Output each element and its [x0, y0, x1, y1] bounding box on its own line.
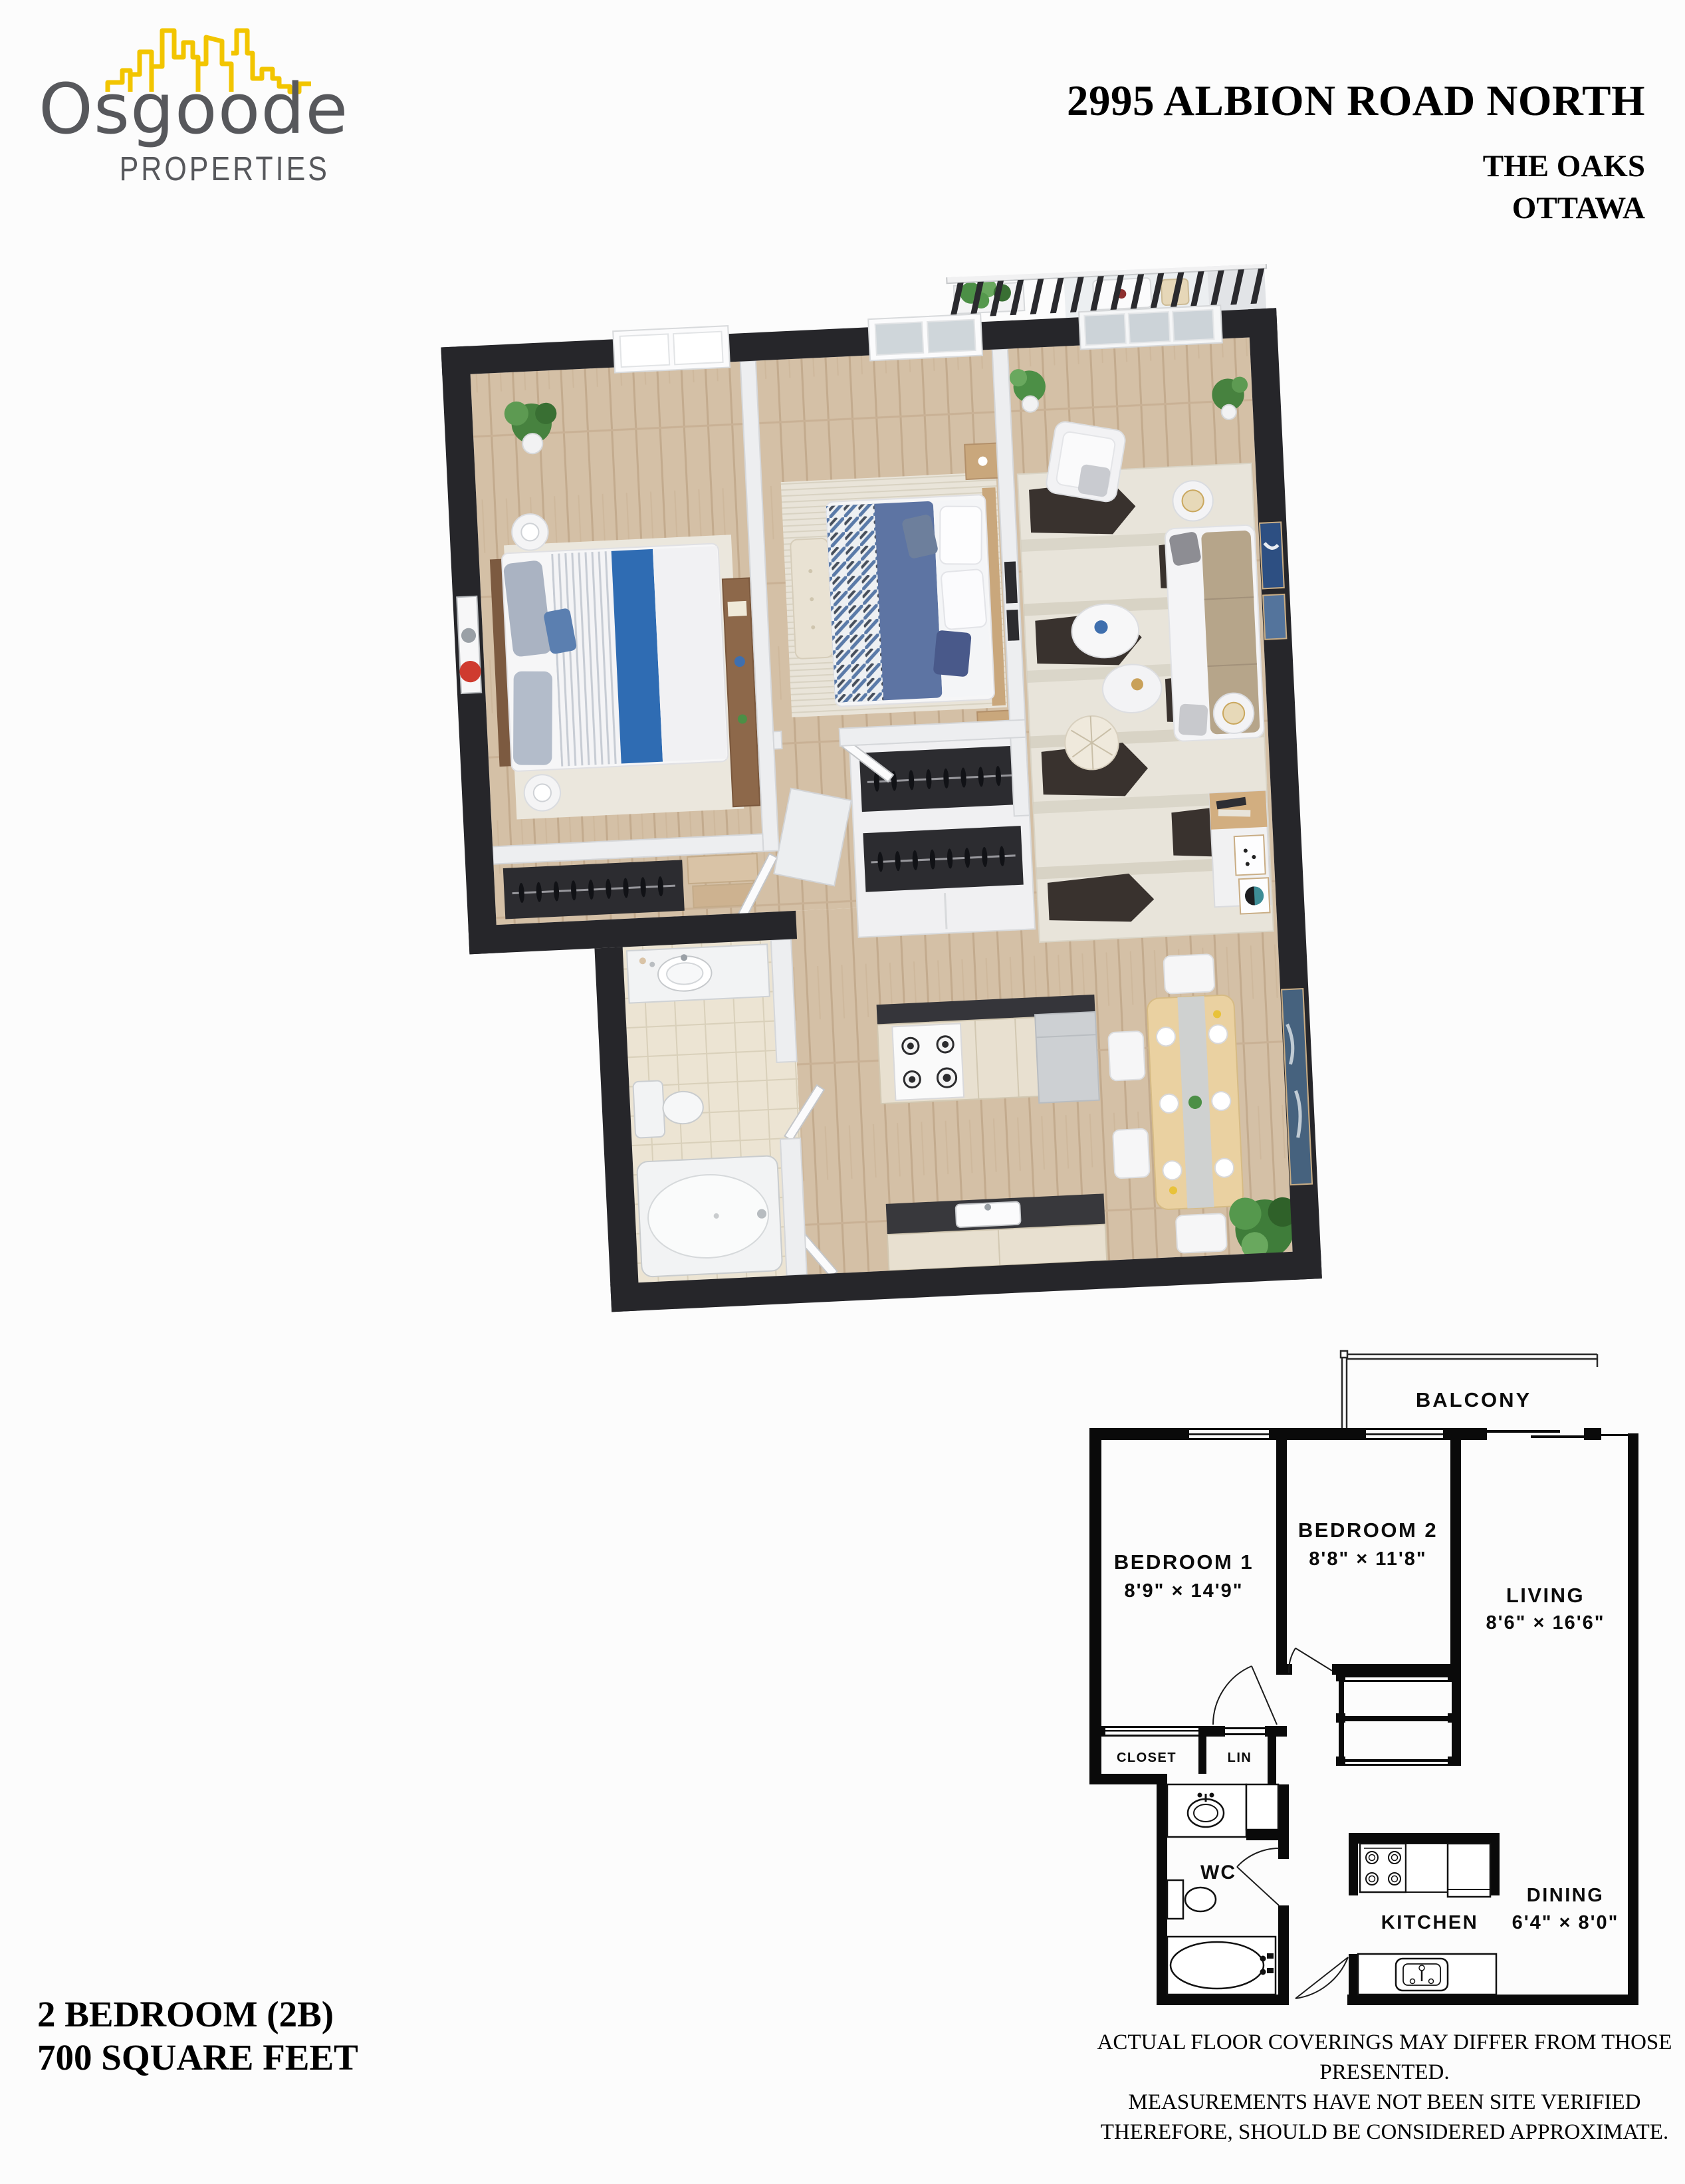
- bedroom1-dims: 8'9" × 14'9": [1125, 1580, 1244, 1602]
- kitchen-label: KITCHEN: [1381, 1912, 1478, 1933]
- bedroom2-bed: [826, 487, 1006, 713]
- toilet: [633, 1080, 665, 1138]
- bedroom2-dims: 8'8" × 11'8": [1309, 1548, 1426, 1570]
- building-name: THE OAKS: [1067, 151, 1645, 182]
- living-dims: 8'6" × 16'6": [1486, 1612, 1605, 1634]
- lamp: [521, 523, 539, 541]
- armchair: [1045, 420, 1127, 503]
- logo-wordmark: Osgoode: [39, 74, 331, 144]
- disclaimer: ACTUAL FLOOR COVERINGS MAY DIFFER FROM T…: [1092, 2028, 1677, 2147]
- linen-label: LIN: [1228, 1751, 1252, 1765]
- wall-frame: [1004, 561, 1018, 603]
- counter-2d: [1406, 1844, 1448, 1892]
- balcony-label: BALCONY: [1416, 1388, 1531, 1411]
- city-name: OTTAWA: [1067, 193, 1645, 224]
- lamp: [1222, 702, 1245, 725]
- unit-area: 700 SQUARE FEET: [37, 2036, 358, 2080]
- lamp: [533, 784, 551, 802]
- wall-bath-left: [1157, 1774, 1167, 2005]
- logo-tagline: PROPERTIES: [39, 150, 330, 189]
- dining-dims: 6'4" × 8'0": [1512, 1912, 1619, 1933]
- bathroom-2d: [1167, 1784, 1289, 1995]
- stove: [892, 1024, 964, 1100]
- wc-label: WC: [1200, 1862, 1236, 1883]
- bedroom1-wall-art: [456, 596, 482, 693]
- dining-label: DINING: [1527, 1885, 1605, 1906]
- disclaimer-line: MEASUREMENTS HAVE NOT BEEN SITE VERIFIED: [1092, 2088, 1677, 2118]
- disclaimer-line: ACTUAL FLOOR COVERINGS MAY DIFFER FROM T…: [1092, 2028, 1677, 2088]
- bathtub: [637, 1155, 782, 1277]
- stove-2d: [1360, 1844, 1406, 1892]
- lamp: [1182, 489, 1204, 512]
- property-address: 2995 ALBION ROAD NORTH: [1067, 80, 1645, 123]
- dining-chair: [1113, 1129, 1150, 1179]
- console-desk: [1209, 790, 1271, 915]
- bedroom2-label: BEDROOM 2: [1298, 1518, 1438, 1542]
- bedroom1-label: BEDROOM 1: [1114, 1550, 1254, 1574]
- dining-chair: [1163, 954, 1214, 994]
- closet-label: CLOSET: [1117, 1751, 1177, 1765]
- fridge: [1035, 1012, 1099, 1103]
- wall-right: [1628, 1433, 1638, 2005]
- floorplan-3d-render: [321, 263, 1347, 1347]
- hall-closets-2d: [1336, 1672, 1461, 1766]
- balcony-sliding-door: [1079, 305, 1222, 349]
- linen-shelf: [687, 854, 758, 884]
- kitchen-wall: [1349, 1833, 1500, 1844]
- closet-door-symbol: [1105, 1726, 1198, 1737]
- disclaimer-line: THEREFORE, SHOULD BE CONSIDERED APPROXIM…: [1092, 2118, 1677, 2147]
- floorplan-sheet: { "logo": { "name": "Osgoode", "tagline"…: [0, 0, 1685, 2184]
- dining-chair: [1176, 1213, 1227, 1253]
- dining-chair: [1108, 1031, 1145, 1081]
- unit-type: 2 BEDROOM (2B): [37, 1993, 358, 2036]
- wall-frame: [1006, 610, 1019, 641]
- linen-door-symbol: [1225, 1727, 1265, 1735]
- unit-info: 2 BEDROOM (2B) 700 SQUARE FEET: [37, 1993, 358, 2080]
- header-block: 2995 ALBION ROAD NORTH THE OAKS OTTAWA: [1067, 80, 1645, 224]
- bedroom2-window: [868, 314, 982, 360]
- living-label: LIVING: [1506, 1584, 1585, 1607]
- wall-bottom: [1347, 1995, 1638, 2005]
- bedroom1-bed: [490, 543, 729, 772]
- floorplan-2d: BALCONY: [1066, 1335, 1667, 2010]
- bedroom1-window: [613, 326, 730, 372]
- toilet-2d: [1167, 1880, 1183, 1919]
